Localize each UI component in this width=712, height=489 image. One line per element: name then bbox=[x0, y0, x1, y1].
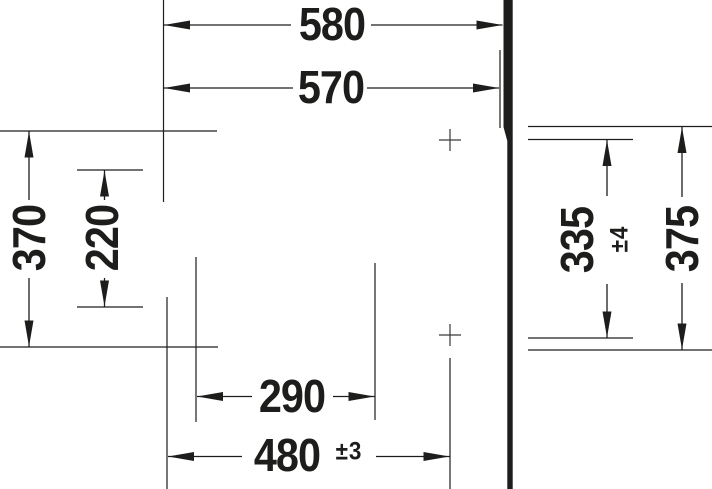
dim-label-480: 480 bbox=[254, 432, 320, 478]
wall-section-line bbox=[504, 0, 513, 489]
arrowhead-down-icon bbox=[678, 324, 687, 350]
arrowhead-right-icon bbox=[477, 21, 503, 30]
arrowhead-up-icon bbox=[678, 127, 687, 153]
arrowhead-down-icon bbox=[100, 281, 109, 307]
dim-label-580: 580 bbox=[299, 1, 365, 47]
arrowhead-left-icon bbox=[164, 84, 190, 93]
dim-label-335: 335 bbox=[554, 207, 600, 273]
dim-label-570: 570 bbox=[298, 64, 364, 110]
arrowhead-up-icon bbox=[100, 171, 109, 197]
dim-label-480-tolerance: ±3 bbox=[336, 440, 363, 465]
dim-label-290: 290 bbox=[259, 373, 325, 419]
arrowhead-right-icon bbox=[349, 392, 375, 401]
mounting-cross-bottom-icon bbox=[439, 324, 461, 346]
arrowhead-up-icon bbox=[25, 132, 34, 158]
dim-label-370: 370 bbox=[6, 205, 52, 271]
arrowhead-down-icon bbox=[25, 321, 34, 347]
arrowhead-left-icon bbox=[168, 452, 194, 461]
technical-drawing: 580 570 370 220 335 ±4 375 290 480 ±3 bbox=[0, 0, 712, 489]
arrowhead-left-icon bbox=[197, 392, 223, 401]
arrowhead-right-icon bbox=[473, 84, 499, 93]
arrowhead-left-icon bbox=[164, 21, 190, 30]
arrowhead-up-icon bbox=[603, 140, 612, 166]
dim-label-375: 375 bbox=[659, 206, 705, 272]
dim-label-335-tolerance: ±4 bbox=[608, 226, 633, 253]
arrowhead-right-icon bbox=[424, 452, 450, 461]
arrowhead-down-icon bbox=[603, 312, 612, 338]
dim-label-220: 220 bbox=[79, 205, 125, 271]
mounting-cross-top-icon bbox=[439, 129, 461, 151]
